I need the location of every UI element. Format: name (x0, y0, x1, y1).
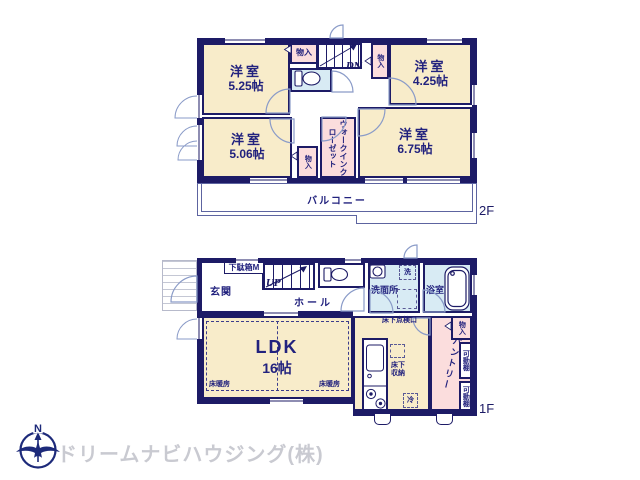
floor-heating-label: 床暖房 (209, 381, 230, 389)
shoe-box: 下駄箱M (224, 262, 264, 274)
door-arc (330, 25, 343, 38)
door-arc (404, 245, 417, 258)
underfloor-storage-label: 床下収納 (390, 362, 406, 377)
underfloor-access-box (397, 289, 417, 309)
window (236, 258, 258, 263)
window (472, 85, 477, 105)
closet-2f-right: 物入 (371, 43, 389, 79)
entrance-label: 玄関 (210, 283, 232, 298)
floor-label-2f: 2F (479, 203, 494, 218)
casement-arc (175, 96, 197, 118)
ldk-name: LDK (237, 337, 317, 358)
casement-arc (177, 319, 197, 339)
casement-arc (177, 126, 197, 146)
room-2f-506: 洋室 5.06帖 (202, 117, 292, 178)
window (197, 95, 202, 118)
closet-2f-bottom: 物入 (297, 146, 318, 178)
window (345, 258, 361, 263)
window (365, 178, 403, 183)
balcony-label: バルコニー (198, 192, 476, 207)
washer-box: 洗 (399, 265, 416, 280)
walk-in-closet: ウォークインクローゼット (320, 117, 356, 178)
room-2f-525: 洋室 5.25帖 (202, 43, 290, 115)
closet-1f: 物入 (451, 316, 472, 340)
closet-2f-top: 物入 (290, 43, 318, 64)
floor-plan-page: バルコニー 2F 洋室 5.25帖 物入 DN 物入 洋室 4.25帖 洋室 5… (0, 0, 640, 480)
toilet-room-2f (290, 68, 332, 92)
underfloor-storage-box (390, 344, 405, 358)
ldk-size: 16帖 (237, 358, 317, 378)
window (197, 318, 202, 339)
movable-shelf-bottom: 可動棚 (459, 381, 472, 411)
entrance-porch (162, 260, 197, 311)
window (427, 38, 462, 43)
hall-label: ホール (294, 294, 333, 309)
room-2f-675: 洋室 6.75帖 (358, 107, 472, 178)
window (225, 38, 265, 43)
toilet-room-1f (318, 263, 365, 288)
stairs-down-label: DN (346, 62, 362, 72)
stairs-up-label: UP (266, 279, 281, 289)
exterior-door-step (374, 414, 391, 425)
window (472, 133, 477, 158)
company-name: ドリームナビハウジング(株) (57, 438, 324, 467)
window (250, 178, 287, 183)
bathroom-label: 浴室 (426, 283, 444, 296)
balcony: バルコニー (197, 183, 477, 216)
washroom-label: 洗面所 (371, 283, 398, 296)
room-2f-425: 洋室 4.25帖 (389, 43, 472, 105)
window (407, 178, 460, 183)
floor-heating-label: 床暖房 (319, 381, 340, 389)
kitchen-counter (362, 338, 388, 411)
compass-north-label: N (34, 423, 42, 435)
underfloor-access-label: 床下点検口 (382, 315, 417, 325)
casement-arc (178, 141, 197, 160)
floor-label-1f: 1F (479, 401, 494, 416)
sliding-door (264, 311, 298, 316)
movable-shelf-top: 可動棚 (459, 342, 472, 379)
window (270, 399, 303, 404)
balcony-step (356, 215, 477, 224)
window (197, 125, 202, 160)
fridge-box: 冷 (403, 393, 418, 408)
window (472, 275, 477, 295)
exterior-door-step (436, 414, 453, 425)
